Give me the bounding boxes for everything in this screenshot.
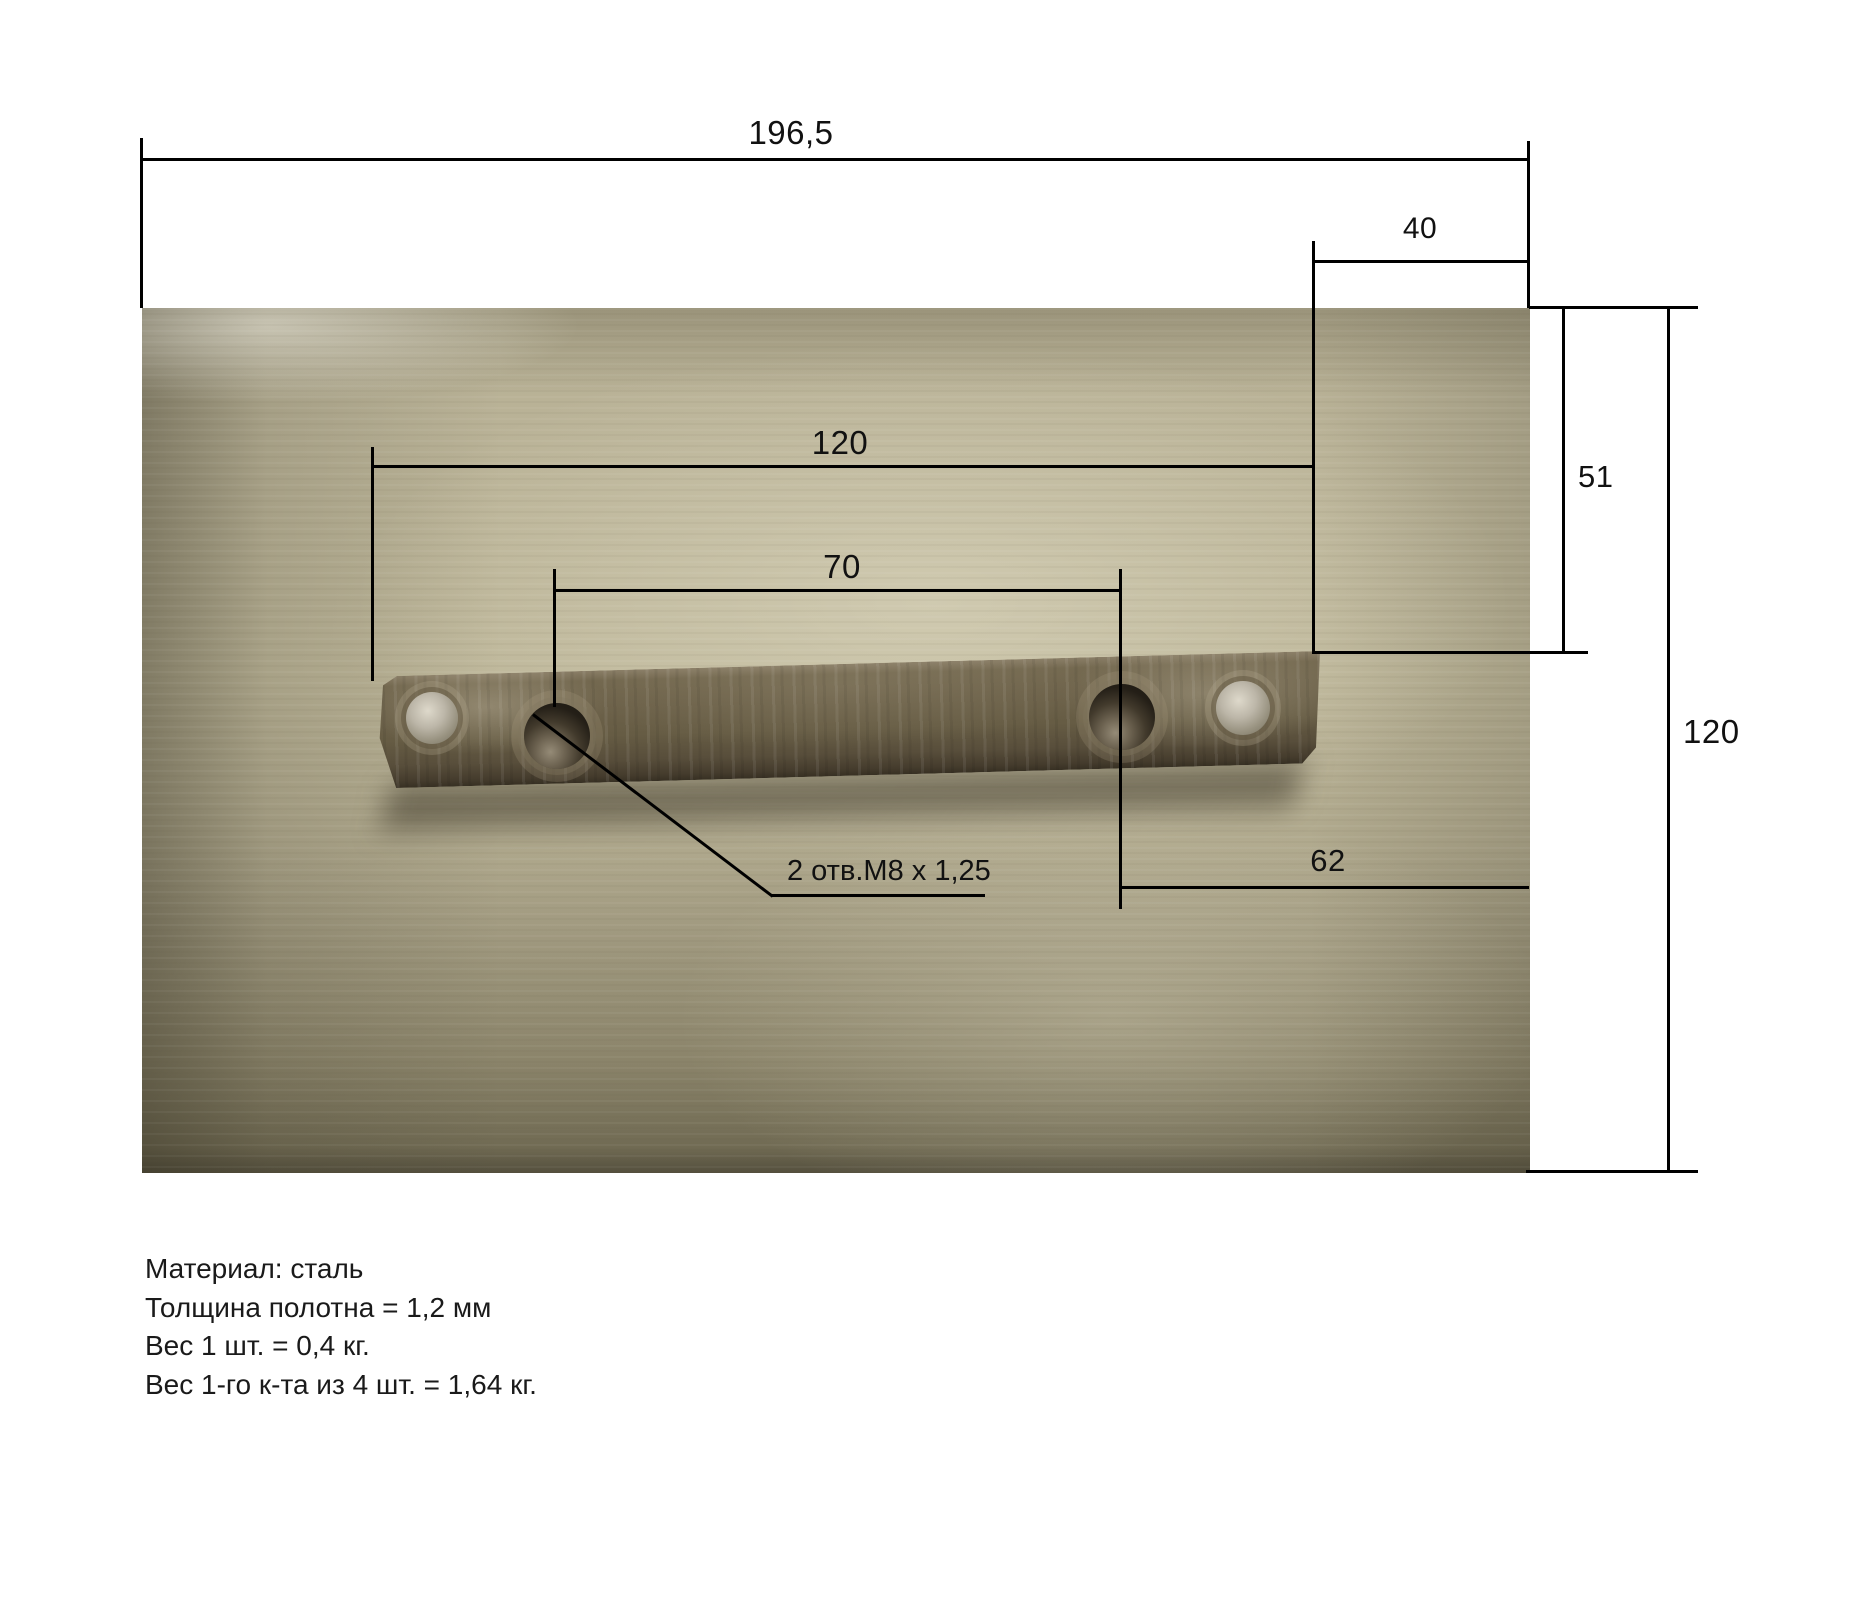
- dim-hole-to-edge-line: [1120, 886, 1529, 889]
- dim-hole-spacing-tick-right: [1119, 569, 1122, 909]
- dim-hole-spacing-tick-left: [553, 569, 556, 707]
- dim-hole-spacing-label: 70: [823, 548, 861, 586]
- note-thickness: Толщина полотна = 1,2 мм: [145, 1289, 537, 1328]
- tick-bar-top-level: [1312, 651, 1588, 654]
- dim-hole-to-edge-label: 62: [1310, 843, 1345, 879]
- dim-right-offset-label: 40: [1403, 212, 1437, 246]
- dim-overall-width-tick-left: [140, 138, 143, 308]
- rivet-left: [406, 692, 458, 744]
- dim-bar-length-label: 120: [812, 424, 869, 462]
- notes-block: Материал: сталь Толщина полотна = 1,2 мм…: [145, 1250, 537, 1404]
- dim-top-right-offset-label: 51: [1578, 459, 1613, 495]
- leader-note-label: 2 отв.М8 х 1,25: [787, 855, 991, 888]
- note-weight-set: Вес 1-го к-та из 4 шт. = 1,64 кг.: [145, 1366, 537, 1405]
- dim-bar-length-tick-left: [371, 447, 374, 681]
- note-material: Материал: сталь: [145, 1250, 537, 1289]
- note-weight-single: Вес 1 шт. = 0,4 кг.: [145, 1327, 537, 1366]
- leader-underline: [772, 894, 985, 897]
- dim-hole-spacing-line: [554, 589, 1122, 592]
- dim-right-offset-tick-left: [1312, 241, 1315, 653]
- technical-drawing-canvas: 196,5 40 120 70 62 51 120 2 отв.М8 х 1,2…: [0, 0, 1872, 1620]
- dim-overall-width-line: [141, 158, 1529, 161]
- dim-bar-length-line: [372, 465, 1314, 468]
- dim-overall-width-label: 196,5: [748, 114, 833, 152]
- dim-overall-height-line: [1667, 308, 1670, 1173]
- tick-photo-top-right: [1529, 306, 1698, 309]
- dim-overall-width-tick-right: [1527, 141, 1530, 308]
- dim-top-right-offset-line: [1562, 308, 1565, 653]
- tick-photo-bottom-right: [1526, 1170, 1698, 1173]
- rivet-right: [1216, 681, 1270, 735]
- dim-right-offset-line: [1312, 260, 1529, 263]
- threaded-hole-right: [1089, 684, 1155, 750]
- dim-overall-height-label: 120: [1683, 713, 1740, 751]
